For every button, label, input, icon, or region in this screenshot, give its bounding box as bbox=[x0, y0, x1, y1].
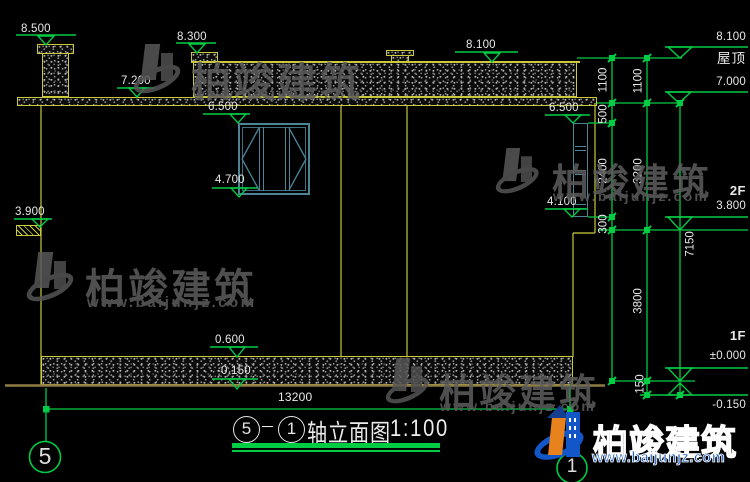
elev-8500: 8.500 bbox=[21, 23, 51, 35]
wall-outlines bbox=[41, 62, 595, 386]
elev-0600: 0.600 bbox=[215, 334, 245, 346]
title-underline-thick bbox=[232, 443, 440, 448]
watermark-logo-icon bbox=[387, 358, 431, 406]
window-casement-lines bbox=[242, 128, 306, 190]
dim-1100-a: 1100 bbox=[599, 68, 610, 93]
watermark-logo-icon bbox=[497, 148, 541, 196]
dim-150: 150 bbox=[636, 374, 647, 393]
elev-8100-right: 8.100 bbox=[692, 31, 746, 43]
elev-7000: 7.000 bbox=[692, 76, 746, 88]
elev-3900: 3.900 bbox=[15, 206, 45, 218]
title-dash: － bbox=[260, 422, 275, 434]
brand-logo-block: 柏竣建筑 www.baijunjz.com bbox=[531, 405, 750, 475]
dim-500: 500 bbox=[599, 104, 610, 123]
title-underline-thin bbox=[232, 450, 440, 452]
watermark-logo-icon bbox=[28, 252, 80, 308]
elev-8300: 8.300 bbox=[177, 31, 207, 43]
elev-0000: ±0.000 bbox=[692, 350, 746, 362]
dim-1100-b: 1100 bbox=[634, 69, 645, 94]
brand-url-text: www.baijunjz.com bbox=[592, 450, 725, 466]
elevation-drawing-canvas: 8.500 8.300 8.100 7.200 6.500 4.700 3.90… bbox=[0, 0, 750, 482]
elev-6500-right: 6.500 bbox=[549, 102, 579, 114]
title-axis-to-circle: 1 bbox=[278, 416, 305, 443]
dim-7150: 7150 bbox=[686, 231, 697, 257]
elev-m0150-center: -0.150 bbox=[217, 365, 251, 377]
dim-3800: 3800 bbox=[634, 288, 645, 314]
dim-300: 300 bbox=[599, 214, 610, 233]
title-axis-from-circle: 5 bbox=[233, 416, 260, 443]
brand-logo-building-blue bbox=[566, 412, 580, 457]
floor-label-1f: 1F bbox=[692, 330, 746, 342]
floor-label-roof: 屋顶 bbox=[692, 53, 746, 65]
watermark-url-text: www.baijunjz.com bbox=[553, 188, 709, 204]
elev-4700: 4.700 bbox=[215, 174, 245, 186]
watermark-logo-icon bbox=[135, 44, 187, 100]
axis-bubble-left-number: 5 bbox=[33, 443, 57, 470]
dim-total-width: 13200 bbox=[278, 391, 312, 403]
watermark-url-text: www.baijunjz.com bbox=[193, 86, 362, 103]
elev-8100-mid: 8.100 bbox=[466, 39, 496, 51]
watermark-url-text: www.baijunjz.com bbox=[87, 294, 256, 311]
drawing-scale: 1:100 bbox=[390, 415, 449, 443]
